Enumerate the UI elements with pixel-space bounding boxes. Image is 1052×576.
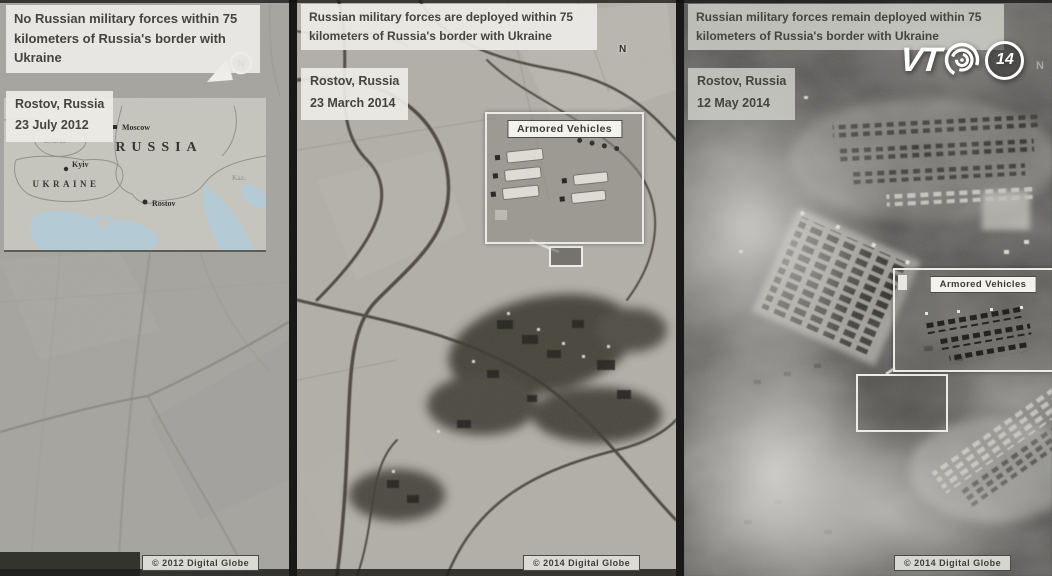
target-location-box [549, 246, 583, 267]
panel-location-date: Rostov, Russia 23 July 2012 [6, 91, 113, 143]
armored-vehicles-inset: Armored Vehicles [893, 268, 1052, 372]
panel-date: 23 July 2012 [15, 115, 104, 137]
armored-vehicles-label: Armored Vehicles [507, 120, 622, 138]
panel-date: 23 March 2014 [310, 93, 399, 115]
vtc14-logo: VT 14 [900, 40, 1024, 80]
map-label-russia: RUSSIA [115, 140, 202, 155]
map-label-ukraine: UKRAINE [32, 179, 99, 189]
tv-news-frame: RUSSIA UKRAINE Moscow Kyiv Rostov Belaru… [0, 0, 1052, 576]
panel-header: No Russian military forces within 75 kil… [6, 5, 260, 142]
panel-location-date: Rostov, Russia 23 March 2014 [301, 68, 408, 120]
copyright-badge: © 2014 Digital Globe [894, 555, 1011, 571]
panel-title: Russian military forces are deployed wit… [301, 4, 597, 50]
armored-vehicles-label: Armored Vehicles [930, 276, 1037, 293]
north-label: N [619, 44, 626, 55]
satellite-panel-2014-may: Russian military forces remain deployed … [684, 0, 1052, 576]
logo-vt-text: VT [898, 43, 941, 77]
panel-divider [676, 0, 684, 576]
panel-location: Rostov, Russia [15, 94, 104, 116]
panel-title: No Russian military forces within 75 kil… [6, 5, 260, 73]
panel-location: Rostov, Russia [697, 71, 786, 93]
map-label-kyiv: Kyiv [72, 160, 88, 169]
logo-channel-number: 14 [985, 41, 1024, 80]
kyiv-marker [64, 167, 68, 171]
copyright-badge: © 2012 Digital Globe [142, 555, 259, 571]
panel-location: Rostov, Russia [310, 71, 399, 93]
target-location-box [856, 374, 948, 432]
rostov-marker [143, 200, 148, 205]
north-label: N [1036, 60, 1044, 72]
copyright-badge: © 2014 Digital Globe [523, 555, 640, 571]
satellite-panel-2014-march: Russian military forces are deployed wit… [297, 0, 676, 576]
panel-location-date: Rostov, Russia 12 May 2014 [688, 68, 795, 120]
logo-c-spiral-icon [942, 40, 982, 80]
panel-date: 12 May 2014 [697, 93, 786, 115]
panel-header: Russian military forces are deployed wit… [301, 4, 597, 120]
armored-vehicles-inset: Armored Vehicles [485, 112, 644, 244]
satellite-panel-2012: RUSSIA UKRAINE Moscow Kyiv Rostov Belaru… [0, 0, 289, 576]
map-label-kazakhstan: Kaz. [232, 173, 246, 182]
panel-divider [289, 0, 297, 576]
top-edge [0, 0, 1052, 3]
map-label-rostov: Rostov [152, 199, 176, 208]
